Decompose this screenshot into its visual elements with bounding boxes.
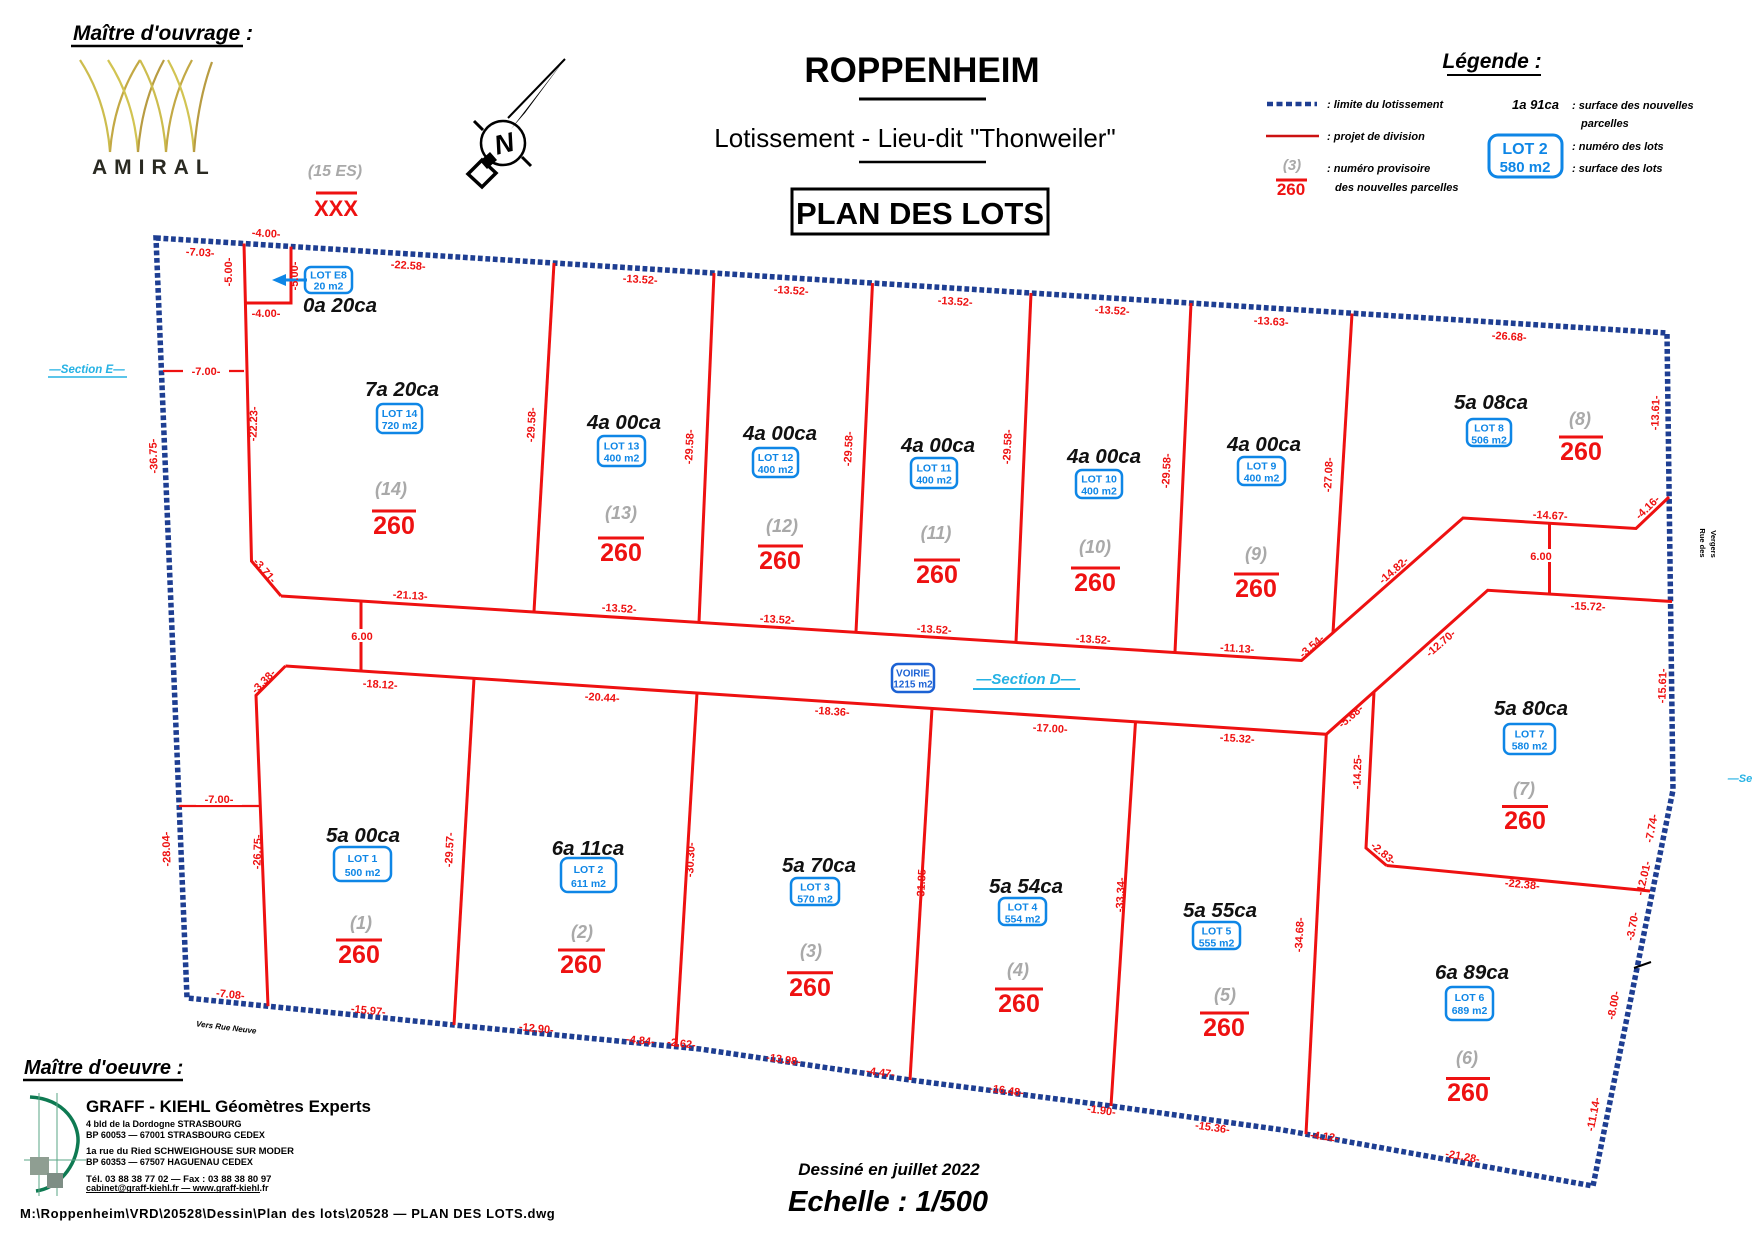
svg-text:-36.75-: -36.75- [147, 438, 160, 474]
svg-text:6.00: 6.00 [351, 631, 372, 643]
svg-text:-14.25-: -14.25- [1351, 754, 1364, 790]
svg-text:Légende :: Légende : [1442, 50, 1541, 73]
svg-text:: surface des lots: : surface des lots [1572, 163, 1662, 175]
svg-text:(12): (12) [766, 516, 798, 536]
svg-text:400 m2: 400 m2 [1081, 486, 1117, 498]
svg-text:(10): (10) [1079, 537, 1111, 557]
svg-text:(1): (1) [350, 913, 372, 933]
svg-text:-31.85-: -31.85- [915, 865, 929, 901]
svg-text:555 m2: 555 m2 [1199, 938, 1235, 950]
svg-text:260: 260 [1560, 438, 1602, 466]
svg-text:260: 260 [338, 941, 380, 969]
svg-text:-7.00-: -7.00- [205, 794, 234, 806]
svg-text:PLAN DES LOTS: PLAN DES LOTS [796, 196, 1044, 231]
svg-text:LOT 2: LOT 2 [1502, 141, 1547, 158]
svg-text:LOT 5: LOT 5 [1202, 926, 1232, 938]
svg-text:(11): (11) [921, 523, 952, 543]
svg-text:(13): (13) [605, 503, 637, 523]
svg-text:(14): (14) [375, 479, 407, 499]
svg-text:7a 20ca: 7a 20ca [365, 378, 439, 401]
svg-text:-17.00-: -17.00- [1032, 722, 1068, 736]
svg-text:689 m2: 689 m2 [1452, 1005, 1488, 1017]
svg-text:-29.58-: -29.58- [1001, 429, 1015, 465]
svg-text:LOT 11: LOT 11 [916, 463, 951, 475]
svg-text:260: 260 [1074, 569, 1116, 597]
svg-text:260: 260 [759, 547, 801, 575]
svg-text:des nouvelles parcelles: des nouvelles parcelles [1335, 182, 1459, 194]
svg-text:260: 260 [998, 990, 1040, 1018]
svg-text:LOT 2: LOT 2 [574, 864, 604, 876]
svg-text:-27.08-: -27.08- [1322, 457, 1336, 493]
svg-text:4 bld de la Dordogne STRASBOUR: 4 bld de la Dordogne STRASBOURG [86, 1119, 242, 1129]
svg-text:-13.52-: -13.52- [622, 273, 658, 287]
svg-text:—Se: —Se [1727, 773, 1752, 785]
svg-text:4a 00ca: 4a 00ca [900, 434, 975, 457]
svg-text:(6): (6) [1456, 1048, 1478, 1068]
svg-text:LOT 13: LOT 13 [604, 441, 640, 453]
svg-text:5a 00ca: 5a 00ca [326, 824, 400, 847]
svg-text:570 m2: 570 m2 [797, 894, 833, 906]
svg-text:400 m2: 400 m2 [916, 475, 952, 487]
svg-text:1a rue du Ried SCHWEIGHOUSE SU: 1a rue du Ried SCHWEIGHOUSE SUR MODER [86, 1146, 294, 1157]
svg-text:5a 54ca: 5a 54ca [989, 875, 1063, 898]
svg-text:Dessiné en juillet 2022: Dessiné en juillet 2022 [798, 1160, 980, 1179]
svg-text:LOT 7: LOT 7 [1515, 729, 1545, 741]
svg-text:260: 260 [373, 512, 415, 540]
svg-text:XXX: XXX [314, 196, 358, 221]
svg-text:parcelles: parcelles [1580, 118, 1629, 130]
svg-text:-5.00-: -5.00- [223, 257, 235, 286]
svg-text:(3): (3) [1283, 157, 1301, 174]
svg-text:BP 60053 — 67001 STRASBOURG CE: BP 60053 — 67001 STRASBOURG CEDEX [86, 1130, 265, 1140]
svg-text:-28.04-: -28.04- [160, 831, 173, 867]
svg-text:: limite du lotissement: : limite du lotissement [1327, 99, 1444, 111]
svg-text:4a 00ca: 4a 00ca [1226, 433, 1301, 456]
svg-text:-29.58-: -29.58- [525, 407, 539, 443]
svg-text:LOT 3: LOT 3 [800, 882, 830, 894]
svg-text:ROPPENHEIM: ROPPENHEIM [804, 51, 1039, 90]
svg-text:-15.61-: -15.61- [1656, 668, 1669, 704]
svg-text:5a 70ca: 5a 70ca [782, 854, 856, 877]
svg-text:-13.52-: -13.52- [1075, 633, 1111, 647]
svg-text:-14.67-: -14.67- [1532, 509, 1568, 523]
svg-text:4a 00ca: 4a 00ca [586, 411, 661, 434]
svg-text:-29.58-: -29.58- [842, 431, 856, 467]
svg-text:400 m2: 400 m2 [1244, 473, 1280, 485]
svg-text:5a 80ca: 5a 80ca [1494, 697, 1568, 720]
svg-text:-13.52-: -13.52- [773, 284, 809, 298]
svg-text:-13.52-: -13.52- [937, 295, 973, 309]
svg-text:BP 60353 — 67507 HAGUENAU CEDE: BP 60353 — 67507 HAGUENAU CEDEX [86, 1157, 253, 1167]
svg-text:cabinet@graff-kiehl.fr — www.g: cabinet@graff-kiehl.fr — www.graff-kiehl… [86, 1183, 269, 1193]
svg-text:-20.44-: -20.44- [584, 691, 620, 705]
svg-text:LOT 6: LOT 6 [1455, 992, 1485, 1004]
svg-text:-22.23-: -22.23- [247, 406, 260, 442]
svg-text:720 m2: 720 m2 [382, 420, 418, 432]
svg-text:: numéro provisoire: : numéro provisoire [1327, 163, 1430, 175]
svg-text:LOT 4: LOT 4 [1008, 902, 1038, 914]
svg-text:-33.34-: -33.34- [1114, 877, 1128, 913]
svg-text:-13.63-: -13.63- [1253, 315, 1289, 329]
svg-text:-22.58-: -22.58- [390, 259, 426, 273]
svg-text:20 m2: 20 m2 [314, 281, 344, 293]
svg-text:500 m2: 500 m2 [345, 867, 381, 879]
svg-text:-13.52-: -13.52- [601, 602, 637, 616]
svg-text:554 m2: 554 m2 [1005, 914, 1041, 926]
svg-text:506 m2: 506 m2 [1471, 435, 1507, 447]
svg-text:LOT 9: LOT 9 [1247, 461, 1277, 473]
svg-text:-13.52-: -13.52- [1094, 304, 1130, 318]
svg-text:260: 260 [1504, 807, 1546, 835]
svg-text:-15.32-: -15.32- [1219, 732, 1255, 746]
svg-text:Vergers: Vergers [1709, 530, 1718, 558]
svg-text:6a 89ca: 6a 89ca [1435, 961, 1509, 984]
svg-text:611 m2: 611 m2 [571, 878, 606, 890]
svg-text:LOT 10: LOT 10 [1081, 474, 1117, 486]
svg-text:—Section D—: —Section D— [975, 671, 1076, 688]
svg-text:260: 260 [1277, 180, 1305, 199]
svg-text:-15.72-: -15.72- [1570, 600, 1606, 613]
svg-text:(3): (3) [800, 941, 822, 961]
svg-text:(9): (9) [1245, 544, 1267, 564]
svg-text:-34.68-: -34.68- [1293, 917, 1307, 953]
svg-text:(7): (7) [1513, 779, 1535, 799]
svg-text:-4.00-: -4.00- [251, 227, 281, 241]
svg-text:400 m2: 400 m2 [758, 464, 794, 476]
svg-text:-26.68-: -26.68- [1491, 330, 1527, 344]
svg-text:LOT 8: LOT 8 [1474, 423, 1504, 435]
svg-text:-4.00-: -4.00- [252, 308, 281, 320]
svg-text:260: 260 [916, 561, 958, 589]
svg-text:-13.52-: -13.52- [759, 613, 795, 627]
svg-text:: numéro des lots: : numéro des lots [1572, 141, 1664, 153]
svg-text:LOT 14: LOT 14 [382, 408, 418, 420]
svg-text:4a 00ca: 4a 00ca [742, 422, 817, 445]
svg-text:4a 00ca: 4a 00ca [1066, 445, 1141, 468]
svg-text:-13.61-: -13.61- [1649, 395, 1662, 431]
svg-text:260: 260 [600, 539, 642, 567]
svg-text:GRAFF - KIEHL Géomètres Expert: GRAFF - KIEHL Géomètres Experts [86, 1097, 371, 1116]
svg-text:(8): (8) [1569, 409, 1591, 429]
svg-text:5a 55ca: 5a 55ca [1183, 899, 1257, 922]
svg-text:LOT 12: LOT 12 [758, 452, 794, 464]
svg-text:-29.58-: -29.58- [683, 429, 697, 465]
svg-text:: projet de division: : projet de division [1327, 131, 1425, 143]
svg-text:1a 91ca: 1a 91ca [1512, 97, 1559, 112]
svg-text:260: 260 [1447, 1079, 1489, 1107]
svg-text:AMIRAL: AMIRAL [92, 156, 216, 179]
svg-text:580 m2: 580 m2 [1500, 159, 1551, 176]
svg-text:Rue des: Rue des [1698, 528, 1707, 557]
svg-text:1215 m2: 1215 m2 [893, 680, 933, 691]
svg-text:-18.12-: -18.12- [362, 678, 398, 692]
svg-text:-7.00-: -7.00- [192, 366, 221, 378]
svg-text:-29.58-: -29.58- [1160, 453, 1174, 489]
svg-text:-5.00-: -5.00- [289, 261, 301, 290]
svg-text:LOT 1: LOT 1 [348, 853, 378, 865]
svg-text:(2): (2) [571, 922, 593, 942]
svg-text:(4): (4) [1007, 960, 1029, 980]
svg-text:260: 260 [1235, 575, 1277, 603]
svg-text:Echelle : 1/500: Echelle : 1/500 [788, 1186, 988, 1218]
svg-text:5a 08ca: 5a 08ca [1454, 391, 1528, 414]
svg-text:400 m2: 400 m2 [604, 453, 640, 465]
svg-text:-26.75-: -26.75- [251, 834, 264, 870]
svg-text:M:\Roppenheim\VRD\20528\Dessin: M:\Roppenheim\VRD\20528\Dessin\Plan des … [20, 1206, 555, 1221]
svg-text:Lotissement - Lieu-dit "Thonwe: Lotissement - Lieu-dit "Thonweiler" [714, 123, 1115, 153]
svg-text:0a 20ca: 0a 20ca [303, 294, 377, 317]
svg-text:(5): (5) [1214, 985, 1236, 1005]
svg-text:-13.52-: -13.52- [916, 623, 952, 637]
svg-text:—Section E—: —Section E— [48, 364, 125, 376]
svg-text:(15 ES): (15 ES) [308, 163, 362, 180]
svg-text:: surface des nouvelles: : surface des nouvelles [1572, 100, 1694, 112]
svg-text:-30.30-: -30.30- [684, 842, 698, 878]
svg-text:580 m2: 580 m2 [1512, 741, 1548, 753]
svg-text:-29.57-: -29.57- [443, 832, 457, 868]
svg-text:VOIRIE: VOIRIE [896, 669, 930, 680]
svg-text:260: 260 [560, 951, 602, 979]
svg-text:6.00: 6.00 [1530, 551, 1551, 563]
svg-text:-7.03-: -7.03- [185, 246, 215, 260]
svg-text:Maître d'ouvrage :: Maître d'ouvrage : [73, 22, 253, 45]
svg-text:Maître d'oeuvre :: Maître d'oeuvre : [24, 1057, 183, 1079]
svg-text:260: 260 [789, 974, 831, 1002]
svg-text:260: 260 [1203, 1014, 1245, 1042]
svg-text:6a 11ca: 6a 11ca [552, 837, 625, 860]
svg-text:-21.13-: -21.13- [392, 589, 428, 603]
svg-text:-18.36-: -18.36- [814, 705, 850, 719]
svg-text:-11.13-: -11.13- [1220, 642, 1255, 656]
